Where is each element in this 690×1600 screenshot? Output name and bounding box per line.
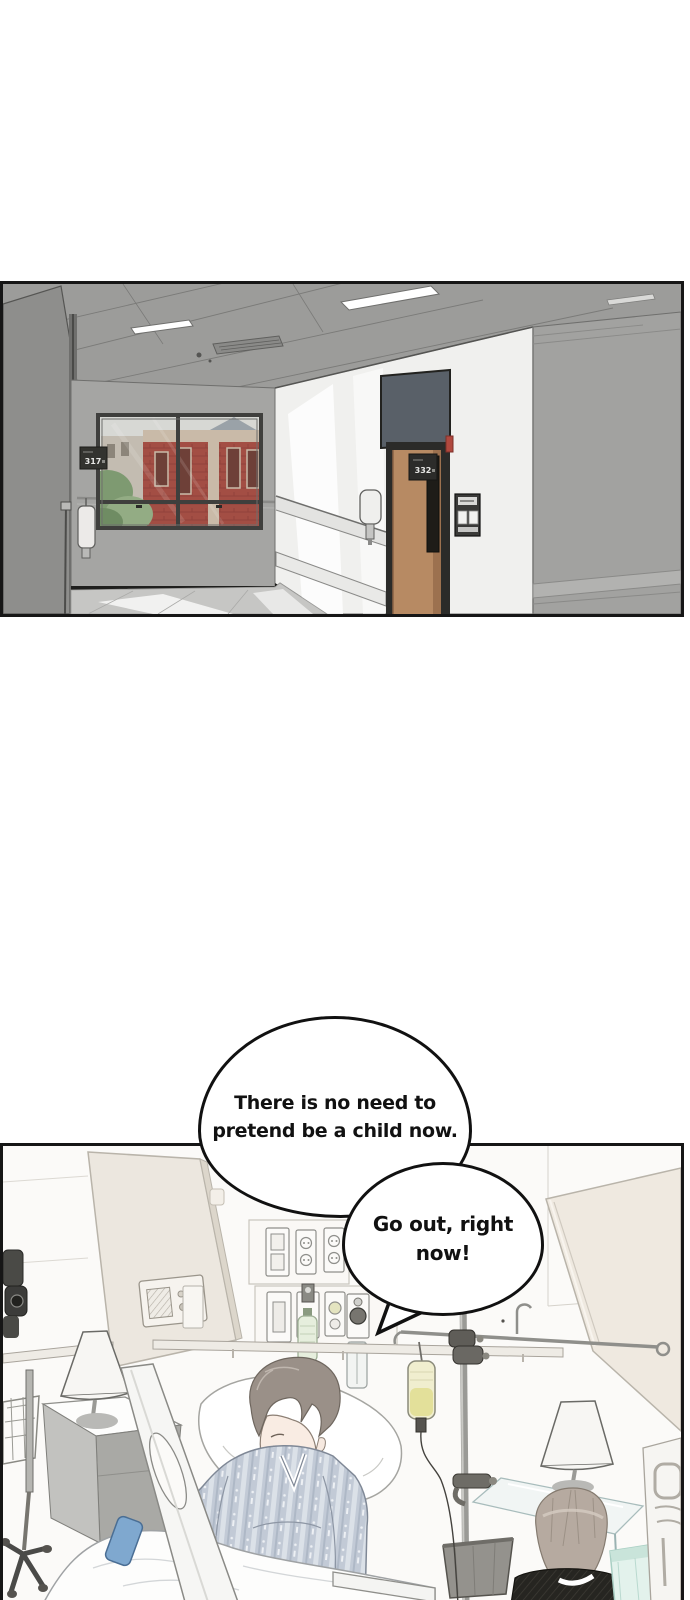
rocker-switch-plate <box>267 1292 291 1342</box>
gas-outlet-plate <box>325 1292 345 1336</box>
hallway-window <box>81 415 261 536</box>
room-sign-332: 332 <box>409 454 437 480</box>
ceiling-sprinkler <box>197 353 202 358</box>
humidifier-bottle <box>298 1316 317 1362</box>
door-red-tag <box>446 436 453 452</box>
hallway-scene: 317 <box>3 284 681 614</box>
door-button-plate <box>455 494 480 536</box>
speech-bubble-1-line2: pretend be a child now. <box>212 1117 457 1146</box>
hallway-door: 332 <box>381 370 453 614</box>
power-outlet-plate <box>324 1228 344 1272</box>
hallway-corner-wall <box>533 312 681 614</box>
panel-hallway: 317 <box>0 281 684 617</box>
speech-bubble-2-line2: now! <box>416 1239 470 1268</box>
room-sign-317: 317 <box>80 447 107 469</box>
ceiling-sprinkler <box>209 360 212 363</box>
speech-bubble-2-line1: Go out, right <box>373 1210 513 1239</box>
woman-hair <box>536 1488 608 1580</box>
room-number-332: 332 <box>415 466 432 475</box>
room-number-317: 317 <box>85 457 102 466</box>
speech-bubble-2: Go out, right now! <box>342 1162 544 1316</box>
wall-plate <box>183 1286 203 1328</box>
comic-page: 317 <box>0 0 690 1600</box>
power-outlet-plate <box>296 1230 316 1274</box>
window-latch <box>136 505 142 508</box>
speech-bubble-1-line1: There is no need to <box>234 1089 436 1118</box>
light-switch-plate <box>266 1228 289 1276</box>
window-latch <box>216 505 222 508</box>
door-transom <box>381 370 450 448</box>
